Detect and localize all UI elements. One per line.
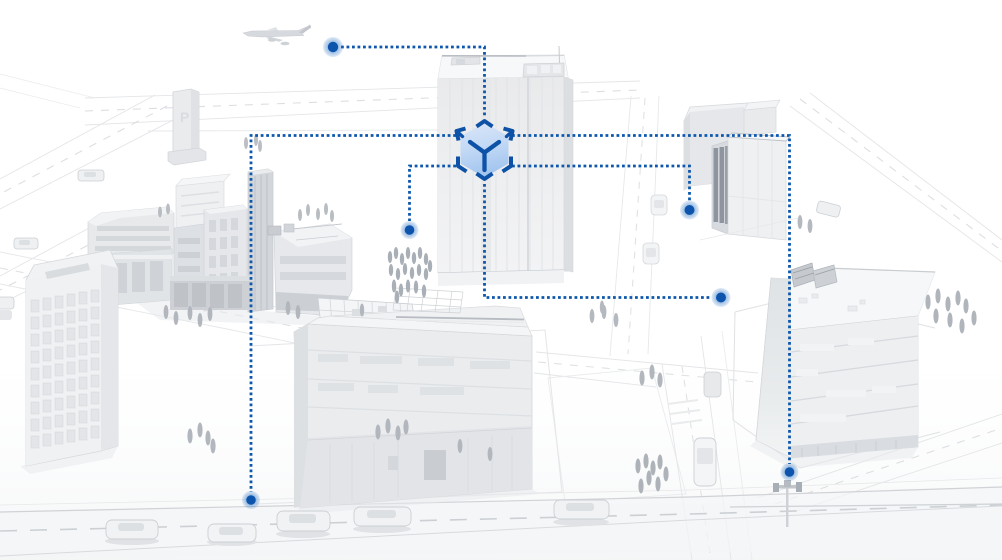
svg-text:P: P	[180, 109, 189, 125]
